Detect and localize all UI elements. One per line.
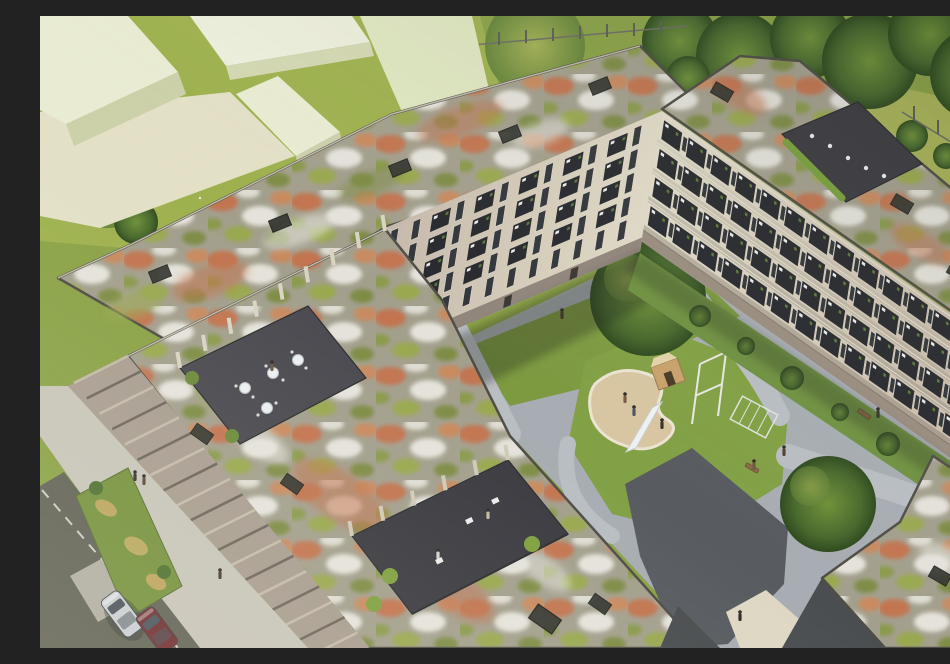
aerial-rendering: Aerial architectural rendering of a U-sh… [40, 16, 950, 648]
aerial-rendering-svg [40, 16, 950, 648]
light-wash [40, 16, 950, 648]
